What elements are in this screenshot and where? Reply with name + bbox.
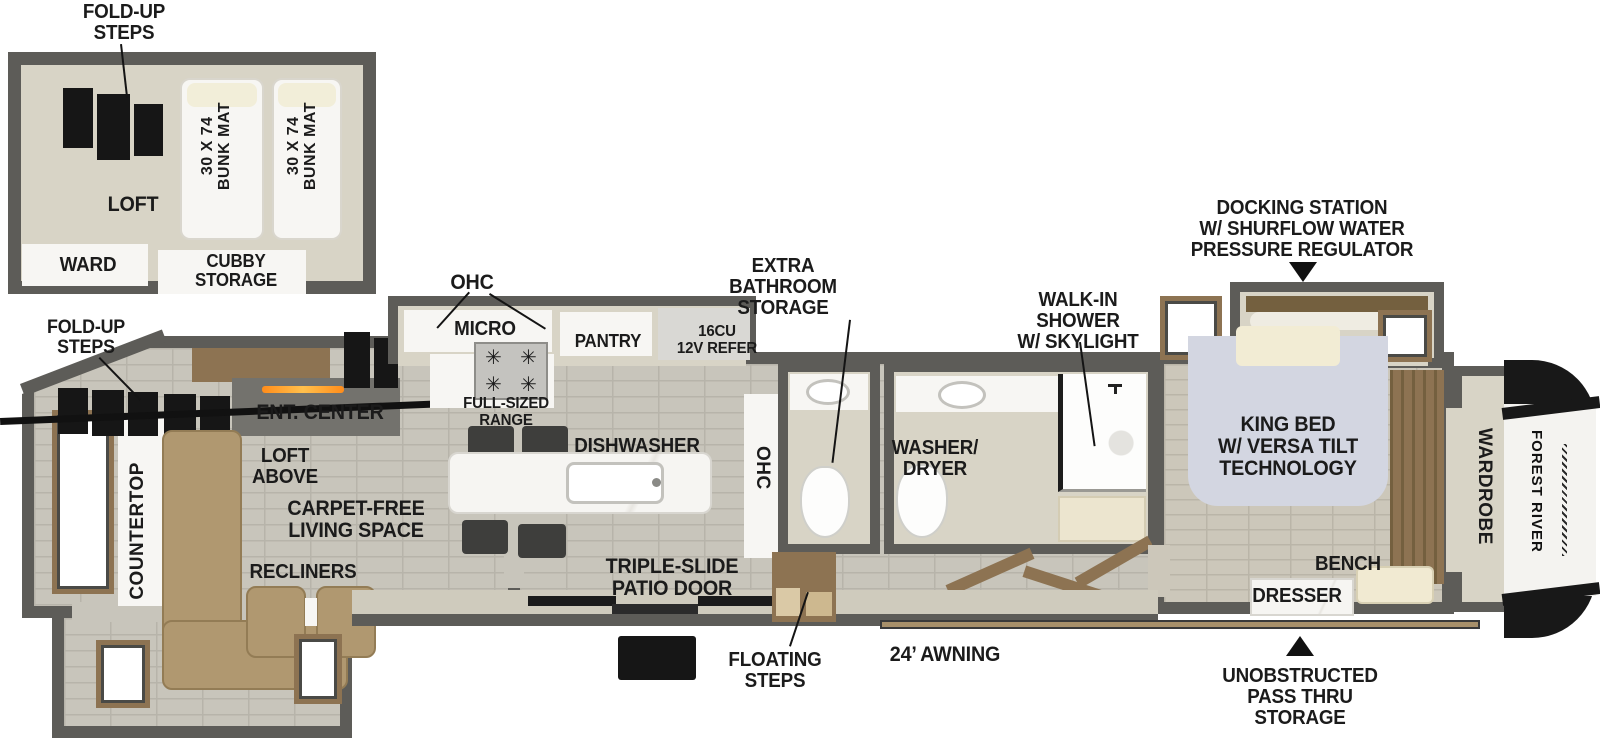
floorplan-diagram: 30 X 74 BUNK MAT 30 X 74 BUNK MAT WARD C…	[0, 0, 1600, 743]
ohc-label: OHC	[450, 272, 493, 294]
bench-label: BENCH	[1315, 554, 1381, 575]
ward-label: WARD	[60, 255, 117, 276]
fold-up-steps-label: FOLD-UP STEPS	[47, 318, 125, 358]
room-opening	[1446, 408, 1462, 572]
king-bed-label: KING BED W/ VERSA TILT TECHNOLOGY	[1218, 414, 1358, 479]
floating-step-tread	[776, 588, 800, 616]
burner-icon: ✳	[520, 348, 537, 368]
kitchen-chair	[518, 524, 566, 558]
slide-window	[96, 640, 150, 708]
awning-roll	[880, 620, 1480, 629]
micro-label: MICRO	[454, 319, 516, 340]
brand-logo: FOREST RIVER	[1528, 430, 1544, 553]
bed-pillow	[1236, 326, 1340, 366]
dishwasher-label: DISHWASHER	[574, 436, 700, 457]
pantry-label: PANTRY	[575, 332, 642, 351]
kitchen-chair	[462, 520, 508, 554]
bunk-mat-label: 30 X 74 BUNK MAT	[200, 102, 234, 190]
washer-dryer-label: WASHER/ DRYER	[892, 438, 978, 480]
cubby-storage-label: CUBBY STORAGE	[195, 252, 277, 289]
range-label: FULL-SIZED RANGE	[463, 396, 549, 429]
toilet	[800, 466, 850, 538]
recliner-console	[305, 598, 317, 626]
loft-step	[134, 104, 163, 156]
bedroom-closet	[1390, 370, 1444, 584]
burner-icon: ✳	[485, 375, 502, 395]
countertop-label: COUNTERTOP	[128, 462, 148, 600]
floating-steps-label: FLOATING STEPS	[728, 650, 821, 692]
fold-up-step	[344, 332, 370, 388]
wardrobe-label: WARDROBE	[1474, 428, 1494, 545]
loft-label: LOFT	[108, 194, 159, 216]
loft-above-label: LOFT ABOVE	[252, 446, 318, 488]
ent-center-label: ENT. CENTER	[256, 402, 383, 424]
rear-window	[52, 410, 114, 594]
slide-window	[294, 634, 342, 704]
walk-in-shower-label: WALK-IN SHOWER W/ SKYLIGHT	[1017, 290, 1138, 352]
burner-icon: ✳	[520, 375, 537, 395]
linen-cabinet	[1058, 496, 1146, 542]
extra-bath-storage-label: EXTRA BATHROOM STORAGE	[729, 256, 837, 318]
entry-step-box	[618, 636, 696, 680]
carpet-free-label: CARPET-FREE LIVING SPACE	[287, 498, 424, 542]
up-arrow-icon	[1286, 636, 1314, 656]
bath-sink	[938, 381, 986, 409]
dresser-label: DRESSER	[1252, 586, 1342, 607]
shower-head-icon	[1114, 384, 1117, 394]
floating-step-tread	[806, 592, 832, 616]
walk-in-shower	[1058, 374, 1146, 492]
triple-slide-label: TRIPLE-SLIDE PATIO DOOR	[606, 556, 739, 600]
ohc-side-label: OHC	[752, 446, 772, 490]
refer-label: 16CU 12V REFER	[677, 324, 757, 357]
bunk-mat-label: 30 X 74 BUNK MAT	[286, 102, 320, 190]
patio-door-panel	[612, 604, 698, 614]
bath-sink	[806, 379, 850, 405]
down-arrow-icon	[1289, 262, 1317, 282]
awning-label: 24’ AWNING	[890, 644, 1000, 666]
docking-station-label: DOCKING STATION W/ SHURFLOW WATER PRESSU…	[1191, 198, 1414, 260]
burner-icon: ✳	[485, 348, 502, 368]
island-sink	[566, 462, 664, 504]
loft-step	[97, 94, 130, 160]
faucet-icon	[652, 478, 661, 487]
recliners-label: RECLINERS	[250, 562, 357, 583]
front-cap-band	[1504, 404, 1596, 596]
loft-step	[63, 88, 93, 148]
patio-door-panel	[528, 596, 616, 606]
fireplace-glow	[262, 386, 344, 393]
signature-squiggle-icon	[1562, 444, 1567, 556]
fold-up-step	[58, 388, 88, 434]
range-cooktop: ✳✳✳✳	[474, 342, 548, 400]
pass-thru-label: UNOBSTRUCTED PASS THRU STORAGE	[1222, 666, 1377, 728]
fold-up-steps-label: FOLD-UP STEPS	[83, 2, 165, 44]
loft-edge-wood	[192, 348, 330, 382]
